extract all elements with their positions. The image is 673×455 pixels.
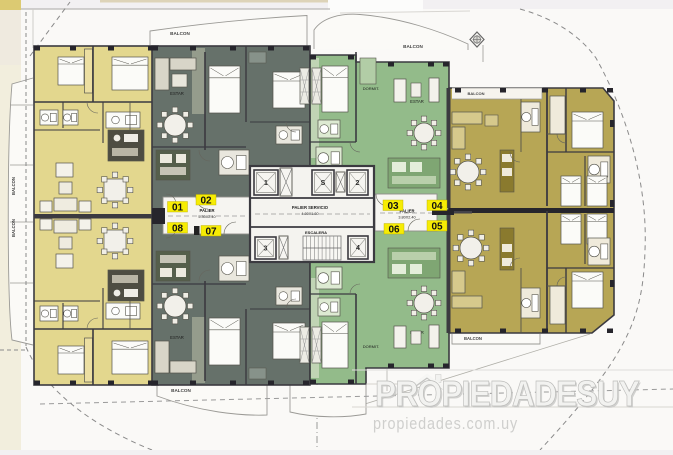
svg-text:4: 4 <box>356 245 360 252</box>
svg-text:ESTAR: ESTAR <box>410 99 424 104</box>
svg-text:3.80X2.40: 3.80X2.40 <box>398 216 415 220</box>
svg-text:02: 02 <box>200 196 212 207</box>
svg-text:PALIER: PALIER <box>199 208 214 213</box>
svg-text:BALCON: BALCON <box>403 44 423 49</box>
svg-text:S: S <box>321 180 326 187</box>
svg-text:2: 2 <box>356 180 360 187</box>
svg-text:04: 04 <box>431 201 443 212</box>
svg-text:DORMIT.: DORMIT. <box>363 344 379 349</box>
svg-text:BALCON: BALCON <box>11 177 16 195</box>
svg-text:BALCON: BALCON <box>171 388 191 393</box>
svg-text:06: 06 <box>388 225 400 236</box>
svg-text:propiedades.com.uy: propiedades.com.uy <box>373 414 518 433</box>
svg-text:ESCALERA: ESCALERA <box>305 230 327 235</box>
svg-text:DORMIT.: DORMIT. <box>363 86 379 91</box>
svg-text:ESTAR: ESTAR <box>170 91 184 96</box>
svg-text:PROPIEDADESUY: PROPIEDADESUY <box>375 373 640 414</box>
svg-text:BALCON: BALCON <box>467 91 484 96</box>
svg-text:ESTAR: ESTAR <box>170 335 184 340</box>
svg-text:07: 07 <box>205 227 217 238</box>
svg-text:1: 1 <box>264 180 268 187</box>
svg-text:03: 03 <box>387 201 399 212</box>
svg-text:BALCON: BALCON <box>11 219 16 237</box>
svg-text:BALCON: BALCON <box>464 336 482 341</box>
svg-text:05: 05 <box>431 222 443 233</box>
svg-text:01: 01 <box>172 203 184 214</box>
svg-text:PALIER SERVICIO: PALIER SERVICIO <box>292 205 329 210</box>
svg-text:BALCON: BALCON <box>170 31 190 36</box>
svg-text:08: 08 <box>172 224 184 235</box>
svg-text:5.30X2.40: 5.30X2.40 <box>198 215 215 219</box>
svg-text:3: 3 <box>264 246 268 253</box>
